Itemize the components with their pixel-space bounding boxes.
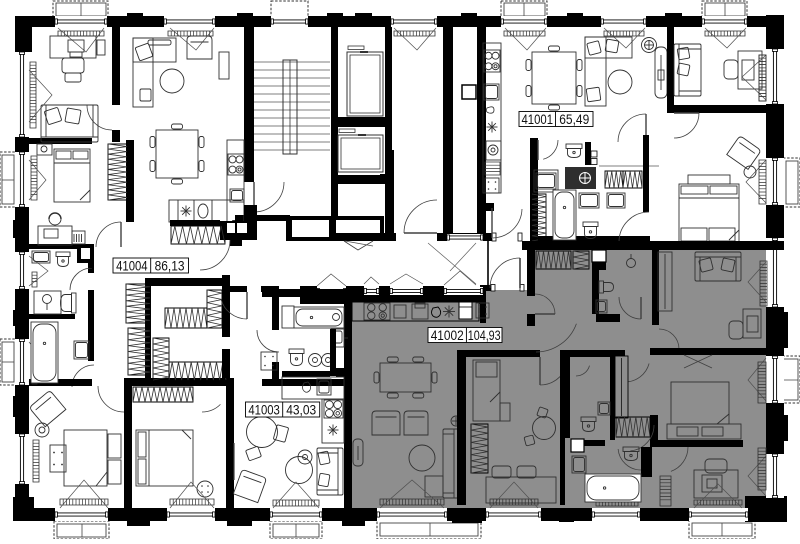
svg-text:41002: 41002 (431, 328, 464, 343)
svg-text:86,13: 86,13 (155, 258, 185, 273)
svg-text:104,93: 104,93 (468, 328, 501, 343)
svg-text:65,49: 65,49 (559, 112, 589, 127)
svg-text:41004: 41004 (116, 258, 148, 273)
svg-text:41001: 41001 (522, 112, 554, 127)
svg-text:41003: 41003 (248, 402, 280, 417)
svg-text:43,03: 43,03 (286, 402, 316, 417)
